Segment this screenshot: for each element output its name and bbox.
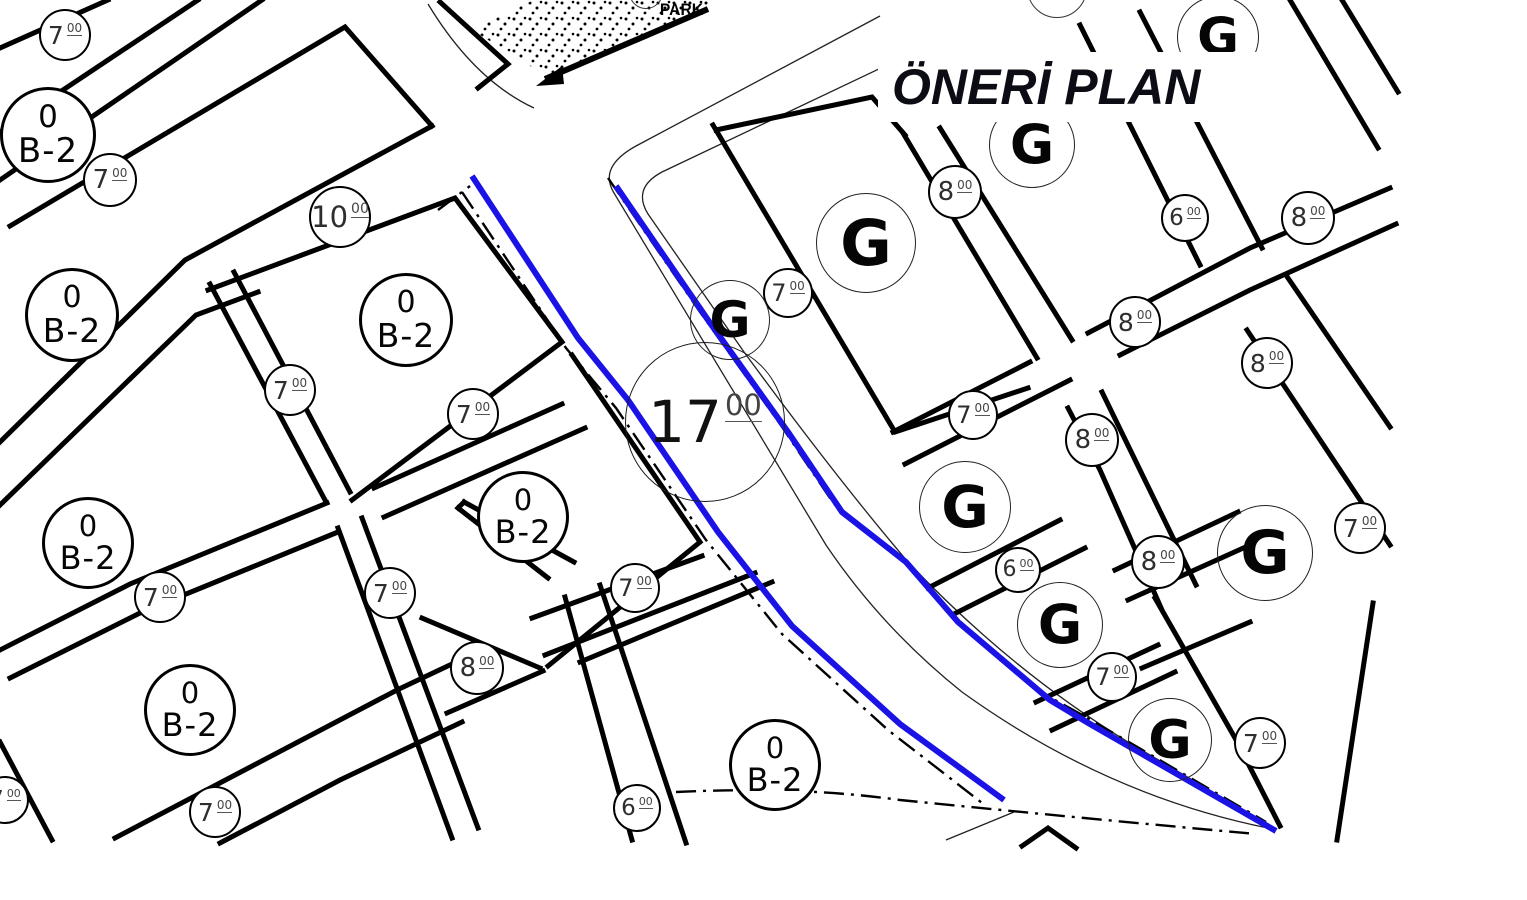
park-label: PARK (660, 0, 703, 20)
zoning-label: 0B-2 (25, 268, 119, 362)
road-width-label: 600 (995, 547, 1041, 593)
road-width-label: 700 (134, 571, 186, 623)
road-width-label: 700 (763, 268, 813, 318)
road-width-label: 800 (1131, 535, 1185, 589)
green-area-label: G (1128, 698, 1212, 782)
road-width-label: 800 (1109, 296, 1161, 348)
zoning-label: 0B-2 (144, 664, 236, 756)
road-width-label: 600 (613, 784, 661, 832)
road-width-label: 700 (447, 388, 499, 440)
proposal-plan-map: 7007001000700700700700700700700800600700… (0, 0, 1527, 900)
road-width-label: 700 (0, 776, 29, 824)
zoning-label: 0B-2 (359, 273, 453, 367)
map-labels-layer: 7007001000700700700700700700700800600700… (0, 0, 1527, 900)
road-width-label: 700 (610, 563, 660, 613)
road-width-label: 700 (364, 567, 416, 619)
page-title: ÖNERİ PLAN (878, 52, 1294, 122)
road-width-label: 600 (1161, 194, 1209, 242)
road-width-label: 700 (948, 390, 998, 440)
road-width-label: 800 (1065, 413, 1119, 467)
circle-outline (629, 0, 663, 9)
circle-outline (1027, 0, 1087, 18)
road-width-label: 700 (189, 786, 241, 838)
road-width-major-label: 1700 (625, 342, 785, 502)
road-width-label: 800 (450, 641, 504, 695)
green-area-label: G (816, 193, 916, 293)
road-width-label: 700 (264, 364, 316, 416)
zoning-label: 0B-2 (42, 497, 134, 589)
road-width-label: 700 (1234, 717, 1286, 769)
road-width-label: 1000 (309, 186, 371, 248)
green-area-label: G (1017, 582, 1103, 668)
zoning-label: 0B-2 (0, 87, 96, 183)
road-width-label: 700 (1334, 502, 1386, 554)
road-width-label: 800 (1241, 337, 1293, 389)
road-width-label: 700 (83, 153, 137, 207)
green-area-label: G (919, 461, 1011, 553)
road-width-label: 800 (1281, 191, 1335, 245)
road-width-label: 800 (928, 165, 982, 219)
green-area-label: G (690, 280, 770, 360)
road-width-label: 700 (1087, 652, 1137, 702)
road-width-label: 700 (39, 9, 91, 61)
zoning-label: 0B-2 (477, 471, 569, 563)
zoning-label: 0B-2 (729, 719, 821, 811)
green-area-label: G (1217, 505, 1313, 601)
